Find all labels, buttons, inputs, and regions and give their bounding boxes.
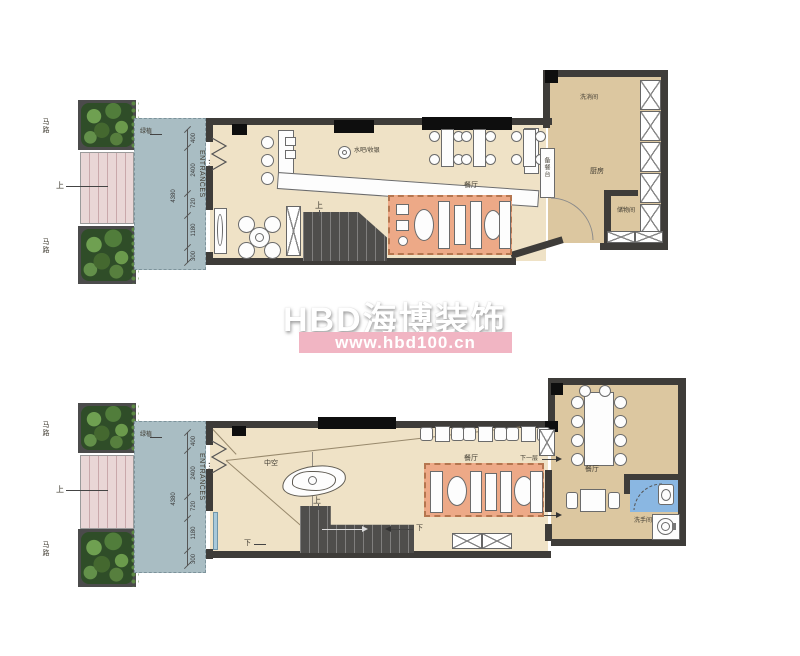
arrow-right-icon [556, 456, 562, 462]
sofa [438, 201, 450, 249]
leader-line [254, 544, 266, 545]
tap-icon [672, 523, 676, 530]
banquet-table [584, 392, 614, 466]
sink-basin-icon [661, 522, 670, 531]
leader-line [542, 459, 556, 460]
chair [579, 385, 591, 397]
dining-table [473, 129, 486, 167]
planter-box [78, 100, 136, 150]
column [232, 426, 246, 436]
dining-set [430, 127, 465, 169]
chair [614, 434, 627, 447]
watermark-url: www.hbd100.cn [299, 332, 512, 353]
planter-box [78, 403, 136, 453]
chair [511, 154, 522, 165]
leader-line [150, 437, 162, 438]
dining-table [435, 426, 450, 442]
glass-door [213, 512, 218, 550]
chair [614, 396, 627, 409]
chair [461, 154, 472, 165]
stairs-up-label: 上 [56, 486, 64, 494]
leader-line [66, 490, 108, 491]
sofa [530, 471, 543, 513]
kitchen-label: 厨房 [590, 168, 604, 175]
dimension-total-label: 4380 [171, 189, 177, 202]
sofa [500, 471, 512, 513]
cabinet [607, 231, 635, 243]
armchair [396, 220, 409, 231]
table-centerpiece-icon [255, 233, 264, 242]
cabinet [635, 231, 663, 243]
cabinet [640, 204, 661, 234]
road-label: 马路 [42, 421, 49, 437]
dimension-label: 1180 [191, 527, 197, 540]
lounge-rug [388, 195, 512, 255]
chair [463, 427, 476, 441]
serving-counter-label: 备餐台 [543, 157, 549, 178]
chair [485, 154, 496, 165]
tree-icon [81, 229, 133, 281]
chair [599, 385, 611, 397]
leader-line [318, 504, 319, 510]
booth-table [454, 205, 466, 245]
dimension-label: 2400 [191, 163, 197, 176]
road-label: 马路 [42, 238, 49, 254]
outdoor-stairs [80, 152, 134, 224]
display-cabinet-glass [217, 214, 223, 246]
cabinet [539, 429, 555, 456]
dimension-total-label: 4380 [171, 492, 177, 505]
cabinet [640, 173, 661, 203]
dimension-label: 400 [191, 436, 197, 446]
tree-icon [81, 103, 133, 147]
cashier-icon-dot [342, 150, 347, 155]
lounge-rug [424, 463, 544, 517]
chair [506, 427, 519, 441]
entrance-label-en: ENTRANCES [198, 453, 205, 501]
dimension-label: 1180 [191, 224, 197, 237]
leader-line [391, 529, 413, 530]
chair [614, 453, 627, 466]
side-table [398, 236, 408, 246]
armchair [396, 204, 409, 215]
dimension-line [187, 432, 188, 566]
chair [429, 154, 440, 165]
stairs-down-label: 下 [244, 540, 251, 547]
cabinet [640, 142, 661, 172]
dimension-label: 300 [191, 251, 197, 261]
dining-set [462, 127, 497, 169]
sculpture-center-icon [308, 476, 317, 485]
leader-line [66, 186, 108, 187]
chair [485, 131, 496, 142]
wc-label: 洗手间 [634, 518, 652, 524]
dining-room-label: 餐厅 [464, 455, 478, 462]
dining-set [463, 424, 505, 444]
bar-stool [261, 136, 274, 149]
stairs-up-label: 上 [56, 182, 64, 190]
wall [624, 474, 680, 480]
column [334, 120, 374, 133]
outdoor-stairs [80, 455, 134, 529]
tree-icon [81, 532, 133, 584]
chair [571, 434, 584, 447]
chair [566, 492, 578, 509]
next-floor-label: 下一层 [520, 456, 538, 462]
private-dining-label: 餐厅 [585, 466, 599, 473]
arrow-right-icon [556, 512, 562, 518]
wall [604, 190, 638, 196]
dimension-label: 400 [191, 133, 197, 143]
stairs-down-label: 下 [416, 525, 423, 532]
stairs-up-label: 上 [315, 202, 323, 210]
oval-table [447, 476, 467, 506]
arrow-right-icon [362, 526, 368, 532]
bar-room-label: 水吧/收银 [354, 148, 380, 154]
wall [206, 166, 213, 210]
chair [429, 131, 440, 142]
dining-table [441, 129, 454, 167]
planter-box [78, 226, 136, 284]
dimension-label: 300 [191, 554, 197, 564]
dining-table [521, 426, 536, 442]
chair [571, 415, 584, 428]
floorplan-canvas: 马路 马路 上 绿植 400 2400 720 1180 300 4380 EN… [0, 0, 800, 656]
booth-table [485, 473, 497, 511]
entrance-label-en: ENTRANCES [198, 150, 205, 198]
column [318, 417, 396, 429]
wall [661, 70, 668, 250]
toilet-bowl-icon [661, 489, 671, 501]
sofa [430, 471, 443, 513]
door-swing-arc [548, 196, 596, 242]
chair [511, 131, 522, 142]
dimension-label: 720 [191, 501, 197, 511]
chair [614, 415, 627, 428]
leader-line [542, 515, 556, 516]
stairs-direction-line [322, 529, 362, 530]
wall [548, 378, 686, 385]
chair [571, 453, 584, 466]
column [545, 70, 558, 83]
leader-line [319, 210, 320, 216]
oval-table [414, 209, 434, 241]
cabinet [640, 80, 661, 110]
column [551, 383, 563, 395]
stairs-up-label: 上 [313, 497, 321, 505]
sofa [470, 471, 482, 513]
bar-stool [261, 154, 274, 167]
leader-line [150, 134, 162, 135]
sofa [499, 201, 511, 249]
chair [461, 131, 472, 142]
dining-table [523, 129, 536, 167]
washroom-label: 洗消间 [580, 95, 598, 101]
chair [608, 492, 620, 509]
planter-box [78, 529, 136, 587]
dimension-line [187, 129, 188, 263]
tree-icon [81, 406, 133, 450]
dining-room-label: 餐厅 [464, 182, 478, 189]
cabinet [286, 206, 301, 256]
coffee-machine-icon [285, 137, 296, 146]
column [232, 124, 247, 135]
wall [206, 469, 213, 511]
dining-set [420, 424, 462, 444]
dimension-label: 720 [191, 198, 197, 208]
dining-table [478, 426, 493, 442]
road-label: 马路 [42, 118, 49, 134]
road-label: 马路 [42, 541, 49, 557]
wall [545, 70, 667, 77]
chair [420, 427, 433, 441]
storage-label: 储物间 [617, 208, 635, 214]
wall [545, 470, 552, 512]
dining-table [580, 489, 606, 512]
cabinet [482, 533, 512, 549]
folding-door-icon [210, 136, 228, 172]
cabinet [452, 533, 482, 549]
chair [571, 396, 584, 409]
atrium-label: 中空 [264, 460, 278, 467]
wall [545, 524, 552, 541]
chair [535, 131, 546, 142]
cabinet [640, 111, 661, 141]
sofa [470, 201, 482, 249]
wall [624, 480, 630, 494]
wall [551, 539, 686, 546]
coffee-machine-icon [285, 150, 296, 159]
dimension-label: 2400 [191, 466, 197, 479]
bar-stool [261, 172, 274, 185]
